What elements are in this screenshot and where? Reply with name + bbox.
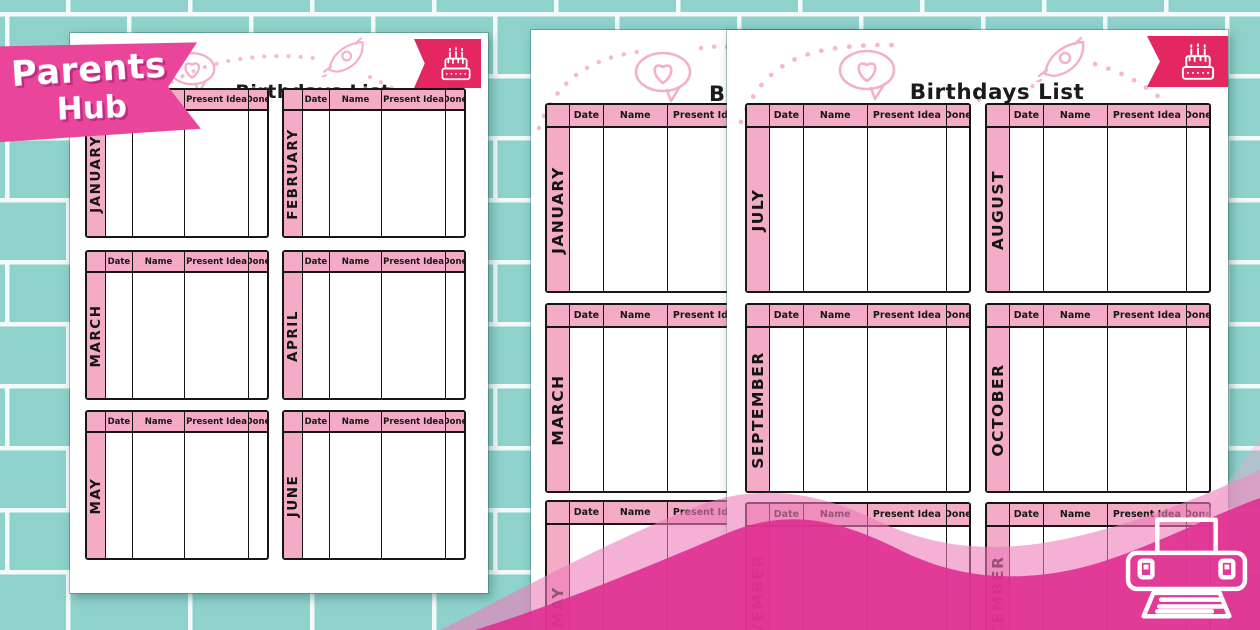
- month-label: SEPTEMBER: [749, 351, 767, 469]
- empty-column-done: [947, 128, 969, 291]
- month-band: MARCH: [547, 328, 570, 491]
- table-body: MAY: [87, 433, 267, 558]
- rocket-icon: [1035, 34, 1091, 82]
- column-header-date: Date: [570, 502, 603, 523]
- empty-column-date: [770, 328, 803, 491]
- column-header-present-idea: Present Idea: [382, 412, 446, 431]
- month-label: JANUARY: [88, 135, 104, 213]
- month-band: MAY: [87, 433, 106, 558]
- table-header-row: DateNamePresent IdeaDone: [987, 105, 1209, 128]
- month-label: AUGUST: [989, 169, 1007, 249]
- empty-column-date: [303, 433, 330, 558]
- corner-cell: [547, 305, 570, 326]
- month-band: FEBRUARY: [284, 111, 303, 236]
- column-header-present-idea: Present Idea: [868, 305, 947, 326]
- month-label: DECEMBER: [989, 555, 1007, 630]
- empty-column-date: [303, 273, 330, 398]
- empty-column-present-idea: [185, 273, 249, 398]
- table-body: MARCH: [87, 273, 267, 398]
- column-header-name: Name: [1044, 305, 1108, 326]
- month-label: FEBRUARY: [285, 128, 301, 220]
- month-band: JULY: [747, 128, 770, 291]
- badge-title-line1: Parents: [10, 46, 167, 95]
- empty-column-date: [570, 525, 603, 630]
- heart-speech-bubble-icon: [631, 48, 697, 104]
- empty-column-date: [106, 433, 133, 558]
- empty-column-name: [1044, 128, 1108, 291]
- month-band: MARCH: [87, 273, 106, 398]
- table-body: SEPTEMBER: [747, 328, 969, 491]
- empty-column-name: [1044, 328, 1108, 491]
- column-header-done: Done: [446, 90, 464, 109]
- empty-column-name: [604, 328, 668, 491]
- column-header-done: Done: [249, 412, 267, 431]
- column-header-name: Name: [804, 105, 868, 126]
- table-header-row: DateNamePresent IdeaDone: [284, 412, 464, 433]
- empty-column-done: [1187, 128, 1209, 291]
- month-label: MAY: [549, 586, 567, 628]
- table-body: JULY: [747, 128, 969, 291]
- month-band: JUNE: [284, 433, 303, 558]
- column-header-name: Name: [1044, 105, 1108, 126]
- empty-column-name: [133, 273, 185, 398]
- month-label: MARCH: [88, 304, 104, 367]
- month-band: AUGUST: [987, 128, 1010, 291]
- empty-column-date: [570, 328, 603, 491]
- table-header-row: DateNamePresent IdeaDone: [87, 252, 267, 273]
- empty-column-name: [804, 328, 868, 491]
- month-table-july: DateNamePresent IdeaDoneJULY: [745, 103, 971, 293]
- table-body: AUGUST: [987, 128, 1209, 291]
- corner-cell: [987, 105, 1010, 126]
- month-label: JULY: [749, 188, 767, 231]
- column-header-done: Done: [446, 252, 464, 271]
- page-title: Birthdays List: [897, 80, 1097, 105]
- column-header-present-idea: Present Idea: [1108, 105, 1187, 126]
- column-header-present-idea: Present Idea: [185, 252, 249, 271]
- table-header-row: DateNamePresent IdeaDone: [747, 504, 969, 527]
- empty-column-done: [249, 433, 267, 558]
- corner-cell: [284, 412, 303, 431]
- column-header-done: Done: [446, 412, 464, 431]
- cake-icon: [437, 46, 475, 82]
- empty-column-name: [804, 527, 868, 630]
- badge-title-line2: Hub: [56, 89, 128, 128]
- table-header-row: DateNamePresent IdeaDone: [747, 305, 969, 328]
- column-header-name: Name: [604, 105, 668, 126]
- column-header-present-idea: Present Idea: [382, 90, 446, 109]
- column-header-done: Done: [249, 252, 267, 271]
- table-header-row: DateNamePresent IdeaDone: [284, 90, 464, 111]
- column-header-present-idea: Present Idea: [868, 105, 947, 126]
- column-header-present-idea: Present Idea: [185, 412, 249, 431]
- empty-column-done: [947, 328, 969, 491]
- month-table-april: DateNamePresent IdeaDoneAPRIL: [282, 250, 466, 400]
- month-table-february: DateNamePresent IdeaDoneFEBRUARY: [282, 88, 466, 238]
- table-header-row: DateNamePresent IdeaDone: [747, 105, 969, 128]
- column-header-date: Date: [770, 105, 803, 126]
- preview-canvas: Birthdays List DateNamePresent IdeaDoneJ…: [0, 0, 1260, 630]
- column-header-done: Done: [1187, 105, 1209, 126]
- table-body: APRIL: [284, 273, 464, 398]
- month-table-november: DateNamePresent IdeaDoneNOVEMBER: [745, 502, 971, 630]
- column-header-date: Date: [770, 504, 803, 525]
- corner-cell: [987, 305, 1010, 326]
- empty-column-present-idea: [1108, 128, 1187, 291]
- month-band: SEPTEMBER: [747, 328, 770, 491]
- month-label: JANUARY: [549, 166, 567, 254]
- empty-column-name: [330, 433, 382, 558]
- column-header-date: Date: [570, 305, 603, 326]
- corner-cell: [747, 105, 770, 126]
- empty-column-done: [249, 111, 267, 236]
- column-header-name: Name: [133, 252, 185, 271]
- month-table-may: DateNamePresent IdeaDoneMAY: [85, 410, 269, 560]
- column-header-date: Date: [1010, 105, 1043, 126]
- empty-column-present-idea: [868, 128, 947, 291]
- column-header-present-idea: Present Idea: [382, 252, 446, 271]
- empty-column-name: [133, 433, 185, 558]
- corner-cell: [547, 105, 570, 126]
- empty-column-done: [446, 273, 464, 398]
- table-body: NOVEMBER: [747, 527, 969, 630]
- empty-column-present-idea: [185, 111, 249, 236]
- column-header-present-idea: Present Idea: [185, 90, 249, 109]
- column-header-done: Done: [1187, 305, 1209, 326]
- corner-cell: [87, 412, 106, 431]
- month-label: JUNE: [285, 474, 301, 517]
- empty-column-date: [1010, 328, 1043, 491]
- column-header-name: Name: [330, 412, 382, 431]
- column-header-name: Name: [604, 502, 668, 523]
- empty-column-done: [446, 433, 464, 558]
- empty-column-date: [106, 273, 133, 398]
- table-header-row: DateNamePresent IdeaDone: [284, 252, 464, 273]
- empty-column-date: [770, 527, 803, 630]
- heart-speech-bubble-icon: [835, 46, 901, 102]
- column-header-date: Date: [1010, 305, 1043, 326]
- month-band: APRIL: [284, 273, 303, 398]
- table-header-row: DateNamePresent IdeaDone: [87, 412, 267, 433]
- table-body: OCTOBER: [987, 328, 1209, 491]
- empty-column-present-idea: [1108, 328, 1187, 491]
- empty-column-name: [604, 128, 668, 291]
- column-header-present-idea: Present Idea: [1108, 305, 1187, 326]
- column-header-name: Name: [330, 90, 382, 109]
- month-table-october: DateNamePresent IdeaDoneOCTOBER: [985, 303, 1211, 493]
- column-header-name: Name: [133, 412, 185, 431]
- empty-column-name: [330, 111, 382, 236]
- column-header-done: Done: [947, 105, 969, 126]
- table-header-row: DateNamePresent IdeaDone: [987, 305, 1209, 328]
- month-band: JANUARY: [547, 128, 570, 291]
- month-label: OCTOBER: [989, 363, 1007, 456]
- empty-column-date: [570, 128, 603, 291]
- corner-cell: [87, 252, 106, 271]
- month-band: MAY: [547, 525, 570, 630]
- column-header-date: Date: [106, 252, 133, 271]
- column-header-date: Date: [1010, 504, 1043, 525]
- cake-icon: [1177, 42, 1219, 82]
- column-header-present-idea: Present Idea: [868, 504, 947, 525]
- corner-cell: [987, 504, 1010, 525]
- column-header-done: Done: [249, 90, 267, 109]
- month-table-march: DateNamePresent IdeaDoneMARCH: [85, 250, 269, 400]
- column-header-done: Done: [947, 504, 969, 525]
- empty-column-name: [604, 525, 668, 630]
- column-header-name: Name: [330, 252, 382, 271]
- empty-column-done: [446, 111, 464, 236]
- empty-column-present-idea: [382, 433, 446, 558]
- column-header-date: Date: [106, 412, 133, 431]
- rocket-icon: [320, 35, 370, 77]
- month-label: APRIL: [285, 310, 301, 362]
- empty-column-name: [1044, 527, 1108, 630]
- column-header-date: Date: [303, 90, 330, 109]
- month-table-august: DateNamePresent IdeaDoneAUGUST: [985, 103, 1211, 293]
- empty-column-date: [1010, 128, 1043, 291]
- month-label: MAY: [88, 477, 104, 514]
- empty-column-date: [770, 128, 803, 291]
- empty-column-date: [1010, 527, 1043, 630]
- column-header-done: Done: [947, 305, 969, 326]
- month-band: OCTOBER: [987, 328, 1010, 491]
- empty-column-done: [947, 527, 969, 630]
- column-header-name: Name: [804, 305, 868, 326]
- empty-column-name: [804, 128, 868, 291]
- table-body: JUNE: [284, 433, 464, 558]
- corner-cell: [747, 504, 770, 525]
- month-label: NOVEMBER: [749, 553, 767, 630]
- empty-column-name: [330, 273, 382, 398]
- empty-column-present-idea: [382, 273, 446, 398]
- empty-column-date: [303, 111, 330, 236]
- table-body: FEBRUARY: [284, 111, 464, 236]
- empty-column-done: [1187, 328, 1209, 491]
- empty-column-present-idea: [382, 111, 446, 236]
- empty-column-done: [249, 273, 267, 398]
- corner-cell: [547, 502, 570, 523]
- column-header-date: Date: [770, 305, 803, 326]
- month-band: DECEMBER: [987, 527, 1010, 630]
- empty-column-present-idea: [185, 433, 249, 558]
- month-label: MARCH: [549, 374, 567, 445]
- column-header-date: Date: [570, 105, 603, 126]
- month-band: NOVEMBER: [747, 527, 770, 630]
- corner-cell: [747, 305, 770, 326]
- printer-icon: [1118, 512, 1255, 624]
- month-table-june: DateNamePresent IdeaDoneJUNE: [282, 410, 466, 560]
- column-header-name: Name: [1044, 504, 1108, 525]
- column-header-date: Date: [303, 252, 330, 271]
- corner-cell: [284, 90, 303, 109]
- corner-cell: [284, 252, 303, 271]
- column-header-name: Name: [604, 305, 668, 326]
- column-header-name: Name: [804, 504, 868, 525]
- month-table-september: DateNamePresent IdeaDoneSEPTEMBER: [745, 303, 971, 493]
- column-header-date: Date: [303, 412, 330, 431]
- empty-column-present-idea: [868, 328, 947, 491]
- empty-column-present-idea: [868, 527, 947, 630]
